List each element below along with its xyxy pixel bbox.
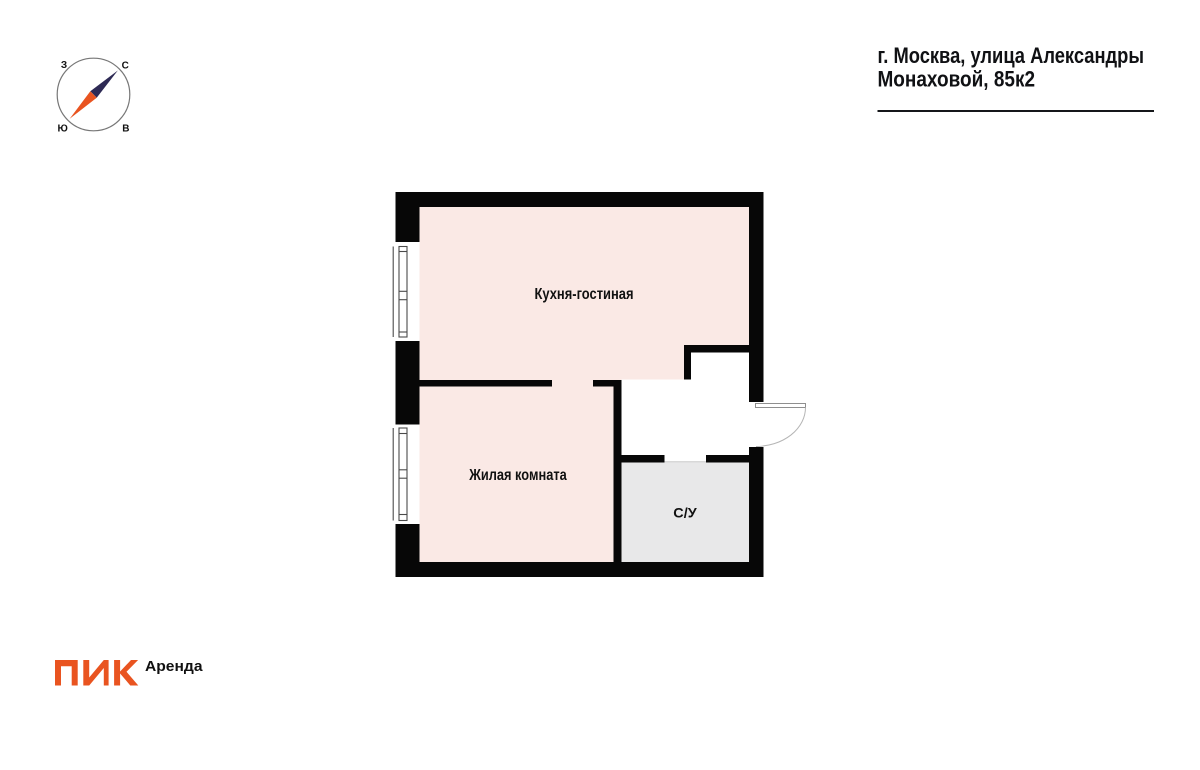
svg-text:Ю: Ю [57,124,67,135]
svg-text:г. Москва, улица Александры: г. Москва, улица Александры [878,43,1145,68]
svg-text:Жилая комната: Жилая комната [468,467,567,484]
svg-text:Монаховой, 85к2: Монаховой, 85к2 [878,66,1036,91]
svg-text:Аренда: Аренда [145,659,204,675]
svg-text:В: В [122,123,129,134]
svg-text:З: З [61,60,67,71]
svg-text:С/У: С/У [673,506,697,521]
svg-text:Кухня-гостиная: Кухня-гостиная [535,286,634,303]
svg-text:С: С [122,60,129,71]
